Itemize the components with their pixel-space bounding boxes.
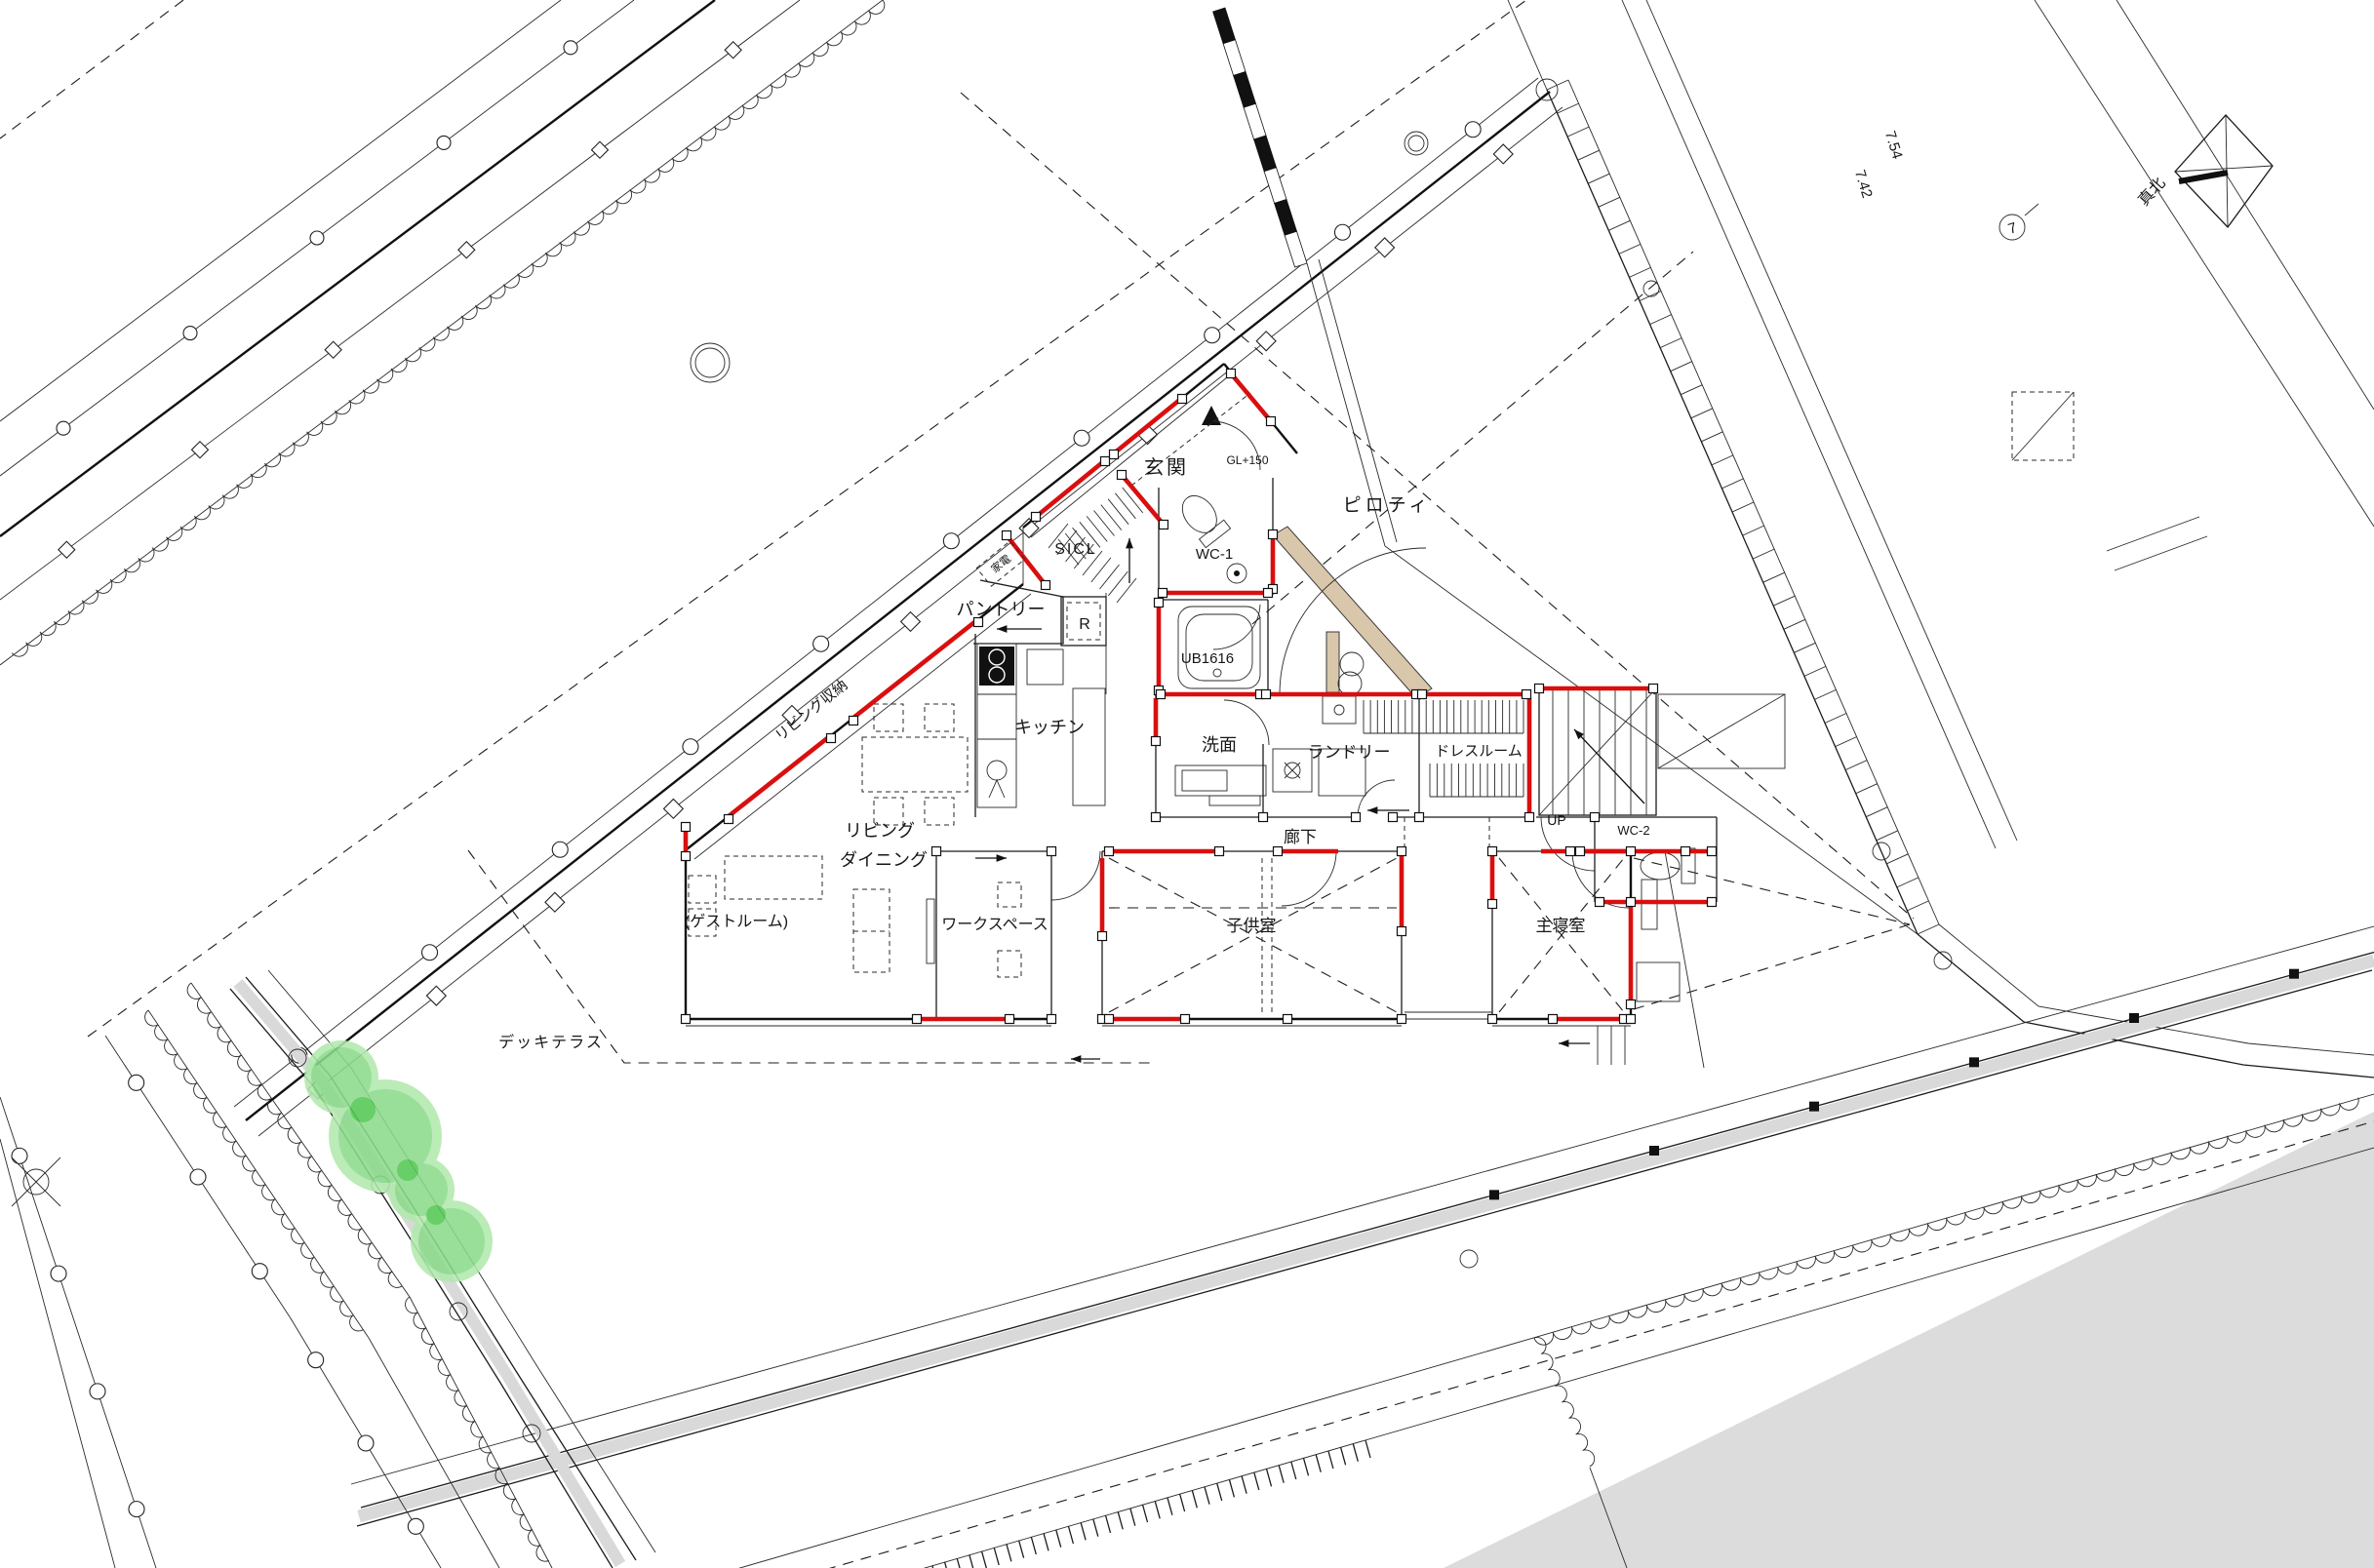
setback-dashed-line	[88, 0, 1526, 1037]
dim-754: 7.54	[1881, 129, 1906, 161]
toilet-wc2	[1641, 852, 1680, 880]
entry-arrow-mark	[1202, 406, 1221, 425]
street-trees	[304, 1040, 493, 1282]
label-fridge: R	[1079, 616, 1090, 633]
site-plan-drawing: 7 7.42 7.54 真北	[0, 0, 2374, 1568]
road-survey-dots	[57, 41, 577, 435]
label-laundry: ランドリー	[1308, 743, 1391, 762]
survey-target	[12, 1157, 60, 1206]
workspace-door-arc	[1051, 851, 1100, 900]
laundry-door-arc	[1358, 780, 1395, 817]
label-workspace: ワークスペース	[941, 916, 1049, 933]
manhole	[691, 343, 730, 382]
label-ub: UB1616	[1181, 650, 1234, 667]
guest-furniture	[725, 856, 822, 899]
label-genkan: 玄関	[1144, 456, 1189, 479]
boundary-diamonds	[308, 144, 1513, 1099]
building	[682, 364, 1786, 1068]
south-hatch-ticks	[883, 1440, 1370, 1568]
ub-door-arc	[1213, 605, 1260, 649]
label-gl: GL+150	[1226, 453, 1268, 467]
label-kitchen: キッチン	[1014, 718, 1085, 737]
floor-plan-sheet: 7 7.42 7.54 真北	[0, 0, 2374, 1568]
dining-table	[862, 737, 968, 792]
piloti-column	[1326, 632, 1339, 692]
label-wc1: WC-1	[1196, 546, 1233, 563]
label-kidsroom: 子供室	[1227, 917, 1277, 935]
label-up: UP	[1547, 812, 1565, 828]
wall-sink	[1323, 696, 1356, 724]
label-dressroom: ドレスルーム	[1435, 743, 1523, 760]
closet-hatch-bottom	[1430, 764, 1523, 797]
dim-742: 7.42	[1851, 168, 1876, 200]
north-compass: 真北	[2135, 115, 2273, 227]
label-guestroom: (ゲストルーム)	[685, 913, 788, 930]
kids-door-arc	[1282, 851, 1336, 906]
east-road: 7 7.42 7.54	[1213, 0, 2374, 1078]
label-deck: デッキテラス	[498, 1033, 604, 1051]
true-north-label: 真北	[2135, 175, 2169, 210]
label-senmen: 洗面	[1202, 735, 1237, 755]
north-pointer	[2179, 173, 2228, 181]
room-labels: 玄関 GL+150 ピロティ SICL WC-1 家電 パントリー R UB16…	[498, 453, 1649, 1051]
label-living-storage: リビング収納	[772, 677, 851, 745]
label-sicl: SICL	[1054, 541, 1097, 558]
label-master: 主寝室	[1536, 916, 1586, 935]
label-dining: ダイニング	[840, 850, 928, 870]
stove	[979, 647, 1014, 686]
oven	[1027, 649, 1063, 685]
fence-rungs	[1547, 80, 1939, 934]
label-wc2: WC-2	[1617, 823, 1649, 838]
survey-point-label: 7	[2006, 219, 2019, 238]
kitchen-sink	[987, 761, 1007, 780]
label-pantry: パントリー	[957, 600, 1046, 619]
toilet-wc1	[1174, 489, 1230, 548]
label-corridor: 廊下	[1284, 828, 1317, 846]
entry-steps	[1049, 524, 1136, 603]
label-living: リビング	[845, 821, 915, 841]
site-north-boundary	[88, 0, 1563, 1136]
island-counter	[1073, 688, 1105, 805]
south-curb-scallop-corner	[1534, 1337, 1595, 1467]
deck-terrace-outline	[468, 850, 1151, 1063]
striped-band	[1213, 8, 1307, 267]
northwest-road	[0, 0, 885, 665]
desk	[998, 882, 1021, 907]
label-piloti: ピロティ	[1343, 495, 1432, 516]
closet-hatch-top	[1364, 700, 1523, 733]
